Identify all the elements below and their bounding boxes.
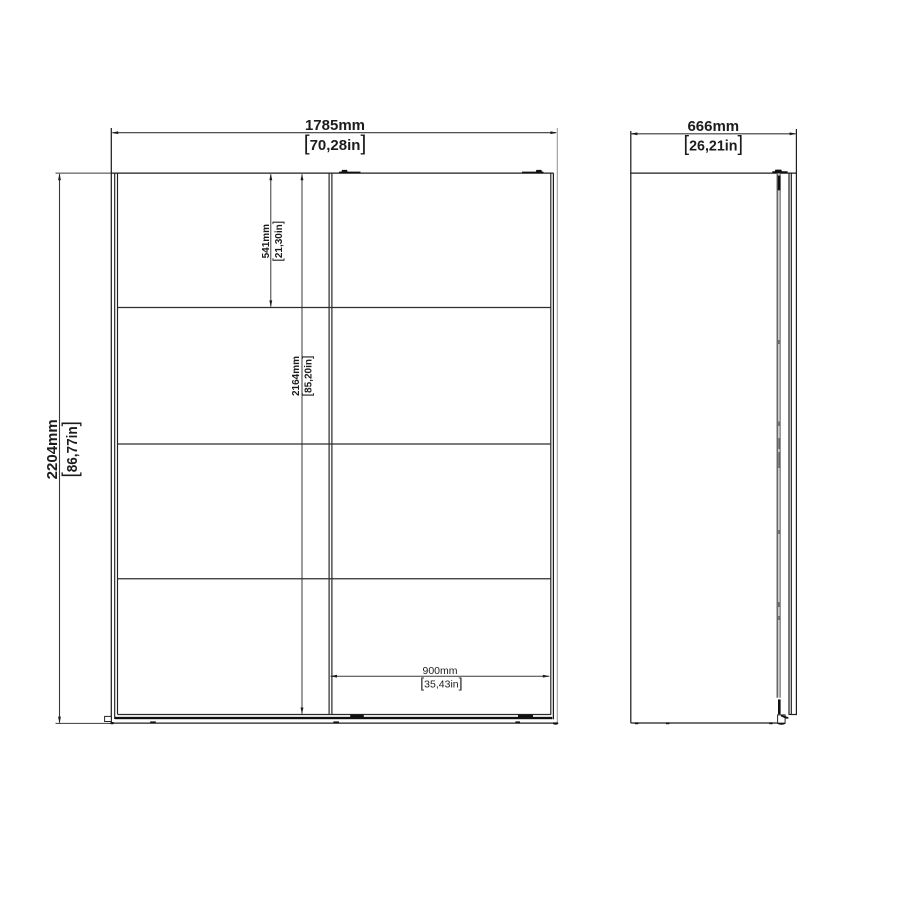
svg-text:[85,20in]: [85,20in] — [301, 356, 315, 397]
svg-text:1785mm: 1785mm — [305, 117, 365, 134]
svg-text:2164mm: 2164mm — [291, 356, 302, 396]
svg-text:2204mm: 2204mm — [44, 419, 61, 479]
svg-text:900mm: 900mm — [422, 665, 457, 677]
svg-text:[21,30in]: [21,30in] — [271, 221, 285, 262]
svg-text:666mm: 666mm — [687, 118, 739, 135]
svg-text:541mm: 541mm — [261, 224, 272, 259]
